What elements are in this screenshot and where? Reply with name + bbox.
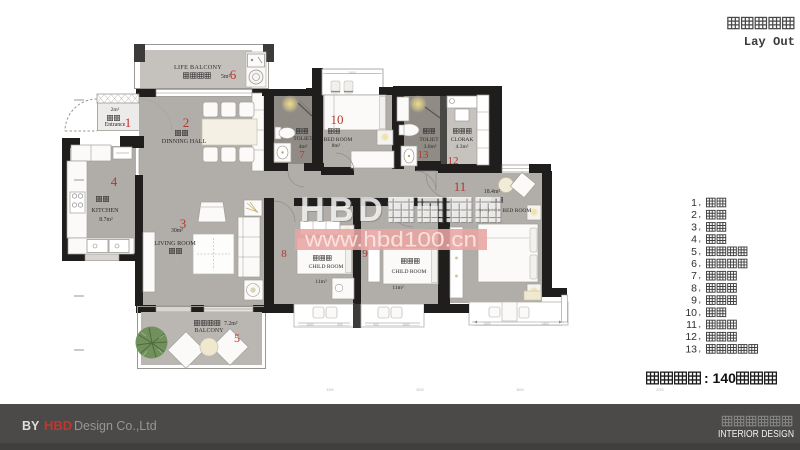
svg-text:8: 8 <box>691 282 697 294</box>
svg-text:4: 4 <box>691 234 697 246</box>
svg-text:11: 11 <box>454 179 467 194</box>
svg-text:2m²: 2m² <box>111 107 120 113</box>
svg-text:1400: 1400 <box>541 322 548 326</box>
svg-text:5: 5 <box>691 246 697 258</box>
svg-text:13: 13 <box>418 149 430 161</box>
svg-text:,: , <box>699 197 702 207</box>
svg-text:HBD: HBD <box>44 418 72 433</box>
svg-text:2200: 2200 <box>656 388 664 392</box>
svg-text:BALCONY: BALCONY <box>194 328 224 334</box>
svg-text:8m²: 8m² <box>332 143 341 149</box>
svg-text:LIVING ROOM: LIVING ROOM <box>154 240 196 247</box>
svg-text:www.hbd100.cn: www.hbd100.cn <box>304 229 477 252</box>
svg-text:,: , <box>699 295 702 305</box>
svg-text:11: 11 <box>686 319 697 331</box>
svg-text:TOLIET: TOLIET <box>419 137 439 143</box>
svg-text:7: 7 <box>299 149 305 161</box>
svg-text:,: , <box>699 270 702 280</box>
svg-text:,: , <box>699 343 702 353</box>
svg-text:HBD: HBD <box>300 191 387 229</box>
svg-text:7: 7 <box>691 270 697 282</box>
svg-text:8: 8 <box>281 248 287 260</box>
svg-text:CHILD ROOM: CHILD ROOM <box>392 269 427 275</box>
svg-text:Design Co.,Ltd: Design Co.,Ltd <box>74 419 157 433</box>
svg-text:1: 1 <box>691 197 697 209</box>
svg-text:Entrance: Entrance <box>105 122 126 128</box>
svg-text:DINNING HALL: DINNING HALL <box>162 138 207 145</box>
svg-text:7.2m²: 7.2m² <box>224 321 238 327</box>
svg-text:INTERIOR DESIGN: INTERIOR DESIGN <box>718 428 794 440</box>
svg-text:30m²: 30m² <box>171 228 183 234</box>
svg-text:1: 1 <box>125 115 132 130</box>
svg-text:,: , <box>699 246 702 256</box>
svg-text:2: 2 <box>691 209 697 221</box>
svg-text:10: 10 <box>685 307 697 319</box>
svg-text:18.4m²: 18.4m² <box>484 189 501 195</box>
svg-text:2: 2 <box>183 115 190 130</box>
svg-text:6: 6 <box>230 67 237 82</box>
svg-text:,: , <box>699 282 702 292</box>
svg-text:9: 9 <box>691 295 697 307</box>
svg-text:10: 10 <box>331 112 344 127</box>
svg-text:,: , <box>699 258 702 268</box>
svg-text:BY: BY <box>22 419 40 433</box>
svg-text:11m²: 11m² <box>315 279 327 285</box>
svg-text:1600: 1600 <box>483 322 490 326</box>
svg-text:3600: 3600 <box>516 388 524 392</box>
svg-text:1500: 1500 <box>402 323 409 327</box>
svg-text:3300: 3300 <box>326 388 334 392</box>
svg-text:12: 12 <box>448 155 459 167</box>
svg-text:,: , <box>699 209 702 219</box>
svg-text:,: , <box>699 319 702 329</box>
svg-text:KITCHEN: KITCHEN <box>91 207 119 214</box>
svg-text:900: 900 <box>373 323 379 327</box>
svg-text:8.7m²: 8.7m² <box>99 217 113 223</box>
svg-text:4.3m²: 4.3m² <box>456 144 469 150</box>
svg-text:,: , <box>699 331 702 341</box>
svg-text:: 140: : 140 <box>704 370 736 386</box>
svg-text:13: 13 <box>685 343 697 355</box>
svg-text:1500: 1500 <box>306 323 313 327</box>
svg-text:3000: 3000 <box>416 388 424 392</box>
svg-text:3: 3 <box>691 221 697 233</box>
svg-text:12: 12 <box>685 331 697 343</box>
svg-text:Lay Out: Lay Out <box>744 35 795 49</box>
svg-text:,: , <box>699 234 702 244</box>
svg-text:11m²: 11m² <box>392 285 404 291</box>
svg-text:2400: 2400 <box>348 71 355 75</box>
svg-text:4: 4 <box>111 174 118 189</box>
svg-text:LIFE BALCONY: LIFE BALCONY <box>174 64 222 71</box>
svg-text:CLORAK: CLORAK <box>451 137 474 143</box>
svg-text:,: , <box>699 307 702 317</box>
svg-text:6: 6 <box>691 258 697 270</box>
svg-text:5: 5 <box>234 331 240 345</box>
svg-text:900: 900 <box>337 323 343 327</box>
svg-text:,: , <box>699 221 702 231</box>
svg-text:TOLIET: TOLIET <box>293 136 313 142</box>
svg-text:CHILD ROOM: CHILD ROOM <box>309 264 344 270</box>
